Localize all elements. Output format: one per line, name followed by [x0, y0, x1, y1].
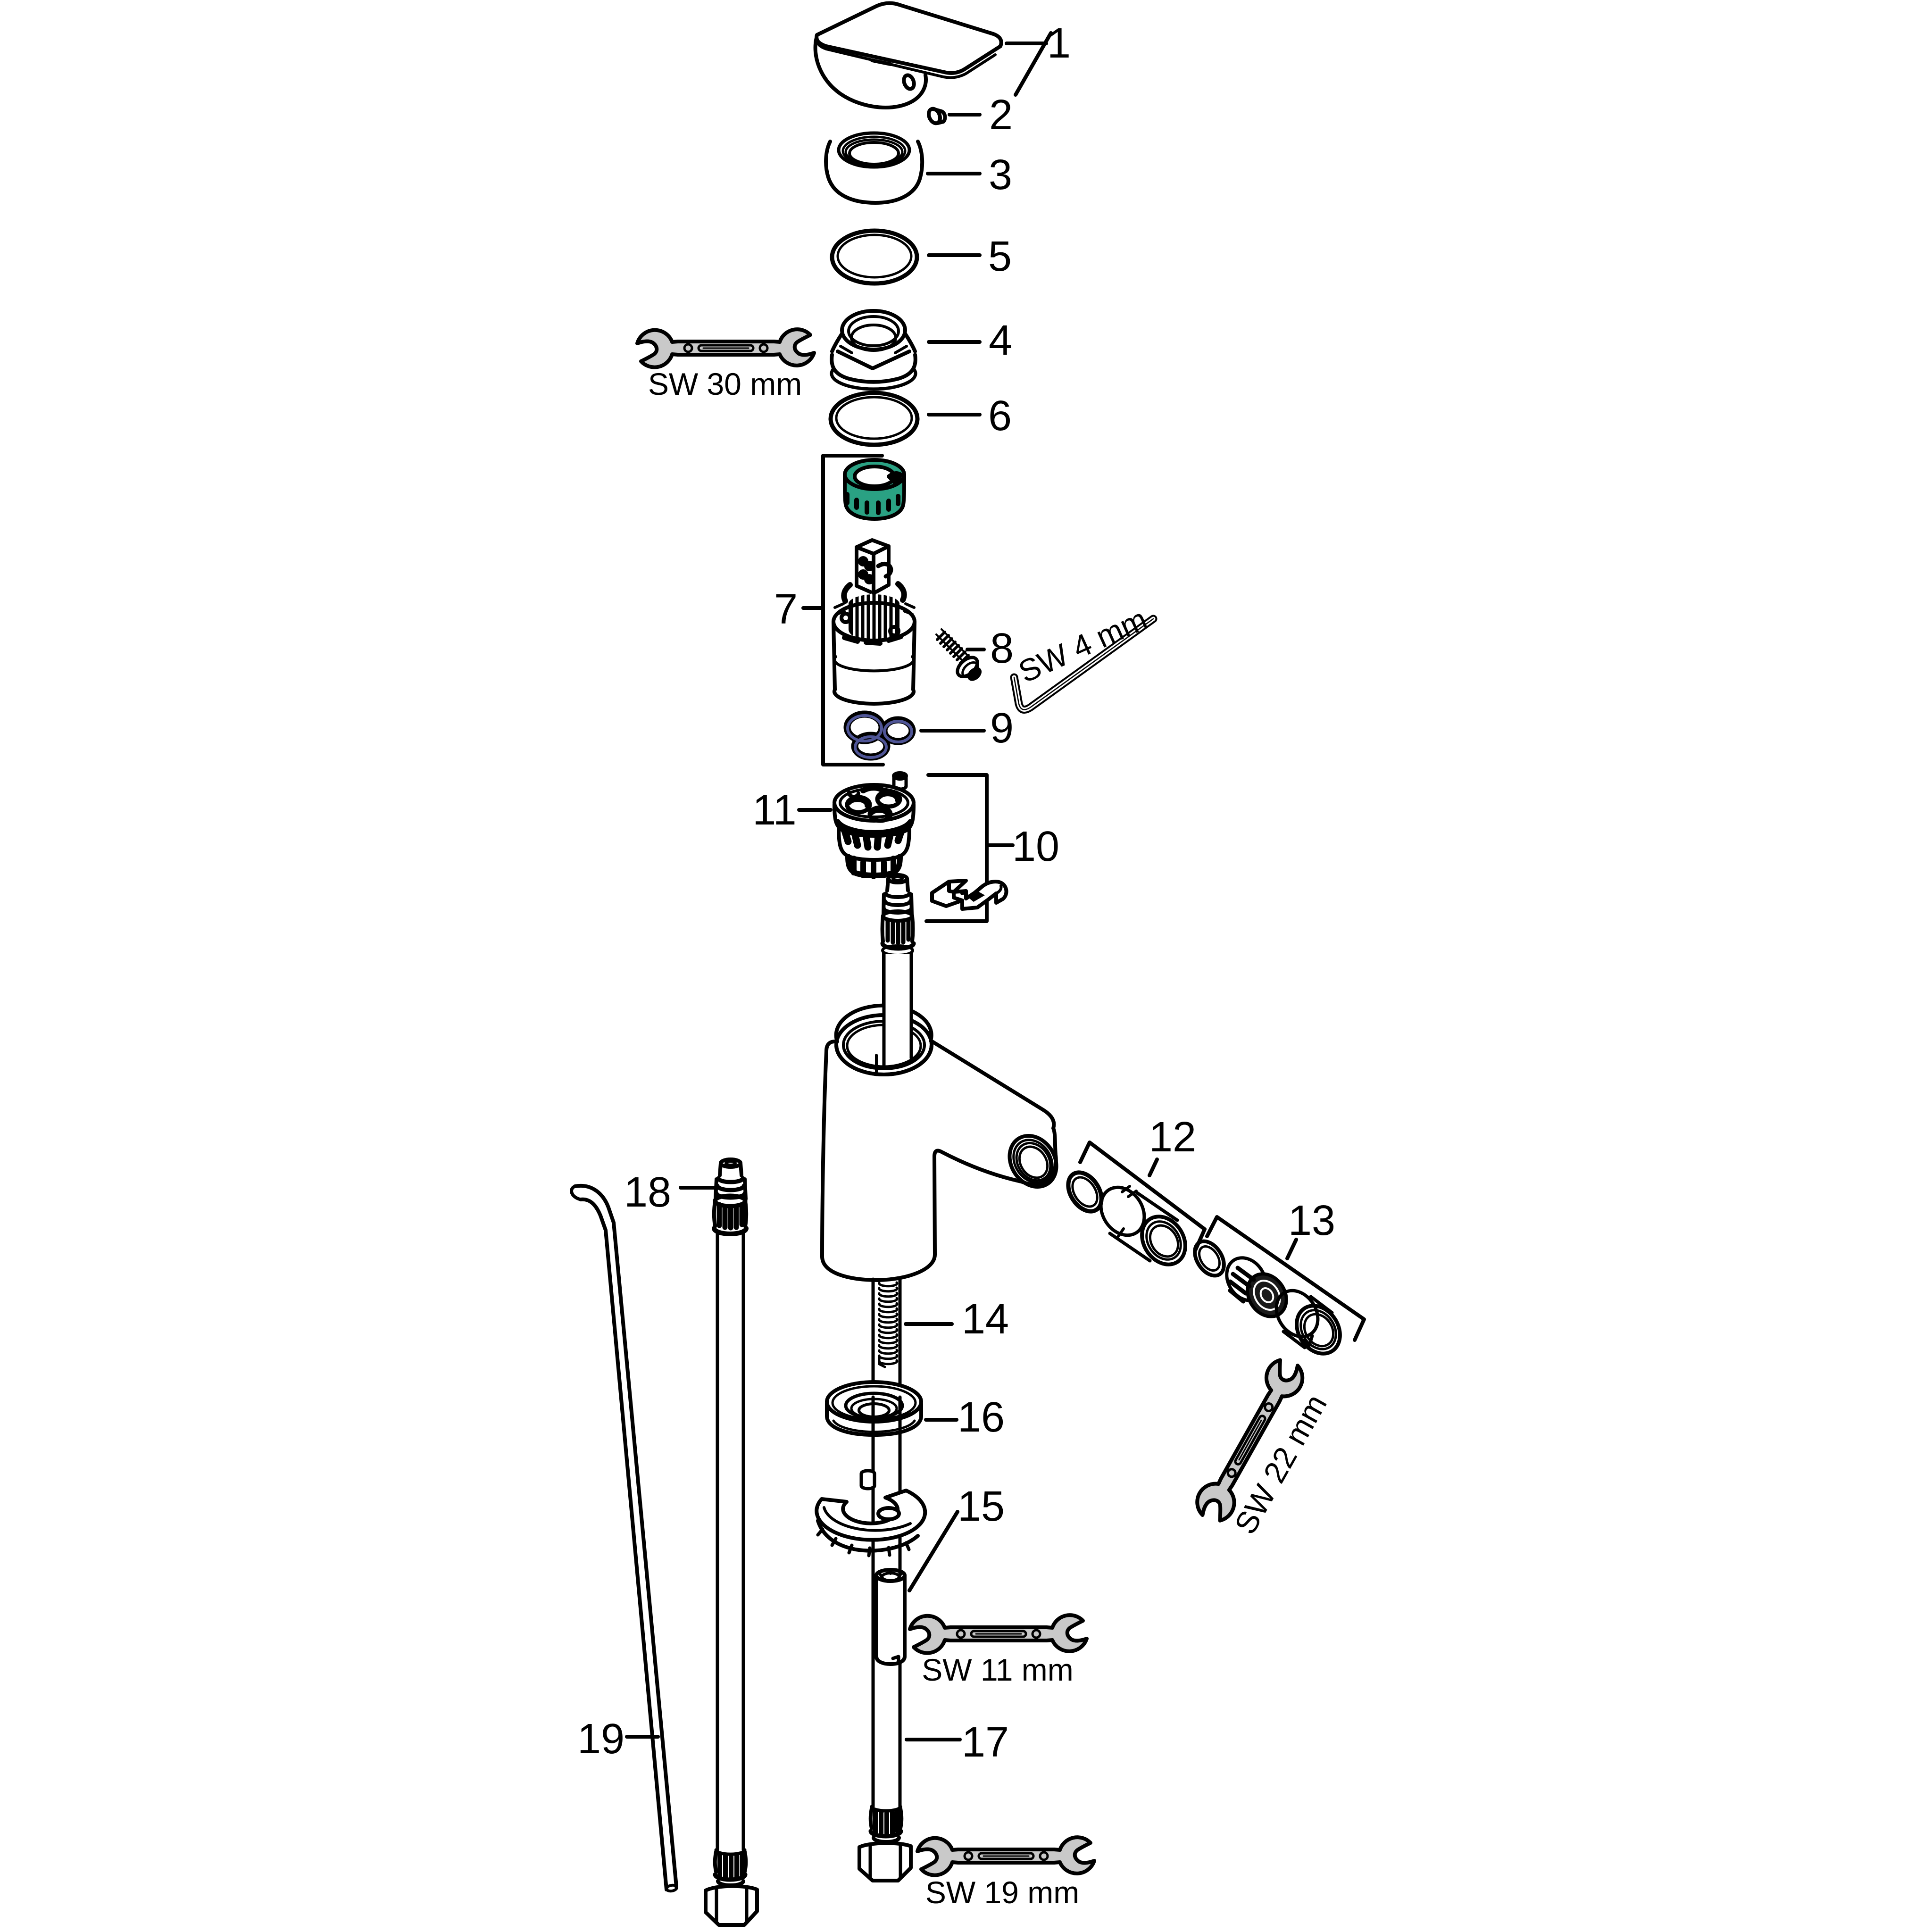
svg-text:19: 19: [577, 1715, 625, 1763]
svg-text:8: 8: [990, 625, 1014, 672]
svg-text:SW 19 mm: SW 19 mm: [925, 1875, 1079, 1910]
svg-text:14: 14: [962, 1296, 1009, 1343]
svg-text:1: 1: [1047, 20, 1071, 67]
svg-text:13: 13: [1288, 1197, 1335, 1244]
svg-text:SW 4 mm: SW 4 mm: [1013, 601, 1152, 690]
svg-text:7: 7: [774, 586, 798, 633]
svg-text:3: 3: [989, 151, 1012, 199]
svg-text:18: 18: [624, 1169, 671, 1216]
svg-text:SW 30 mm: SW 30 mm: [648, 366, 802, 401]
svg-text:5: 5: [988, 233, 1012, 280]
svg-text:10: 10: [1012, 823, 1059, 870]
svg-text:11: 11: [752, 787, 796, 834]
svg-text:16: 16: [958, 1394, 1005, 1441]
svg-text:4: 4: [989, 317, 1012, 364]
svg-text:9: 9: [990, 705, 1014, 752]
svg-text:2: 2: [989, 92, 1013, 139]
svg-text:SW 11 mm: SW 11 mm: [922, 1652, 1073, 1687]
svg-text:12: 12: [1149, 1114, 1196, 1161]
svg-text:15: 15: [958, 1483, 1005, 1530]
svg-text:6: 6: [988, 392, 1012, 440]
svg-text:17: 17: [962, 1719, 1009, 1766]
